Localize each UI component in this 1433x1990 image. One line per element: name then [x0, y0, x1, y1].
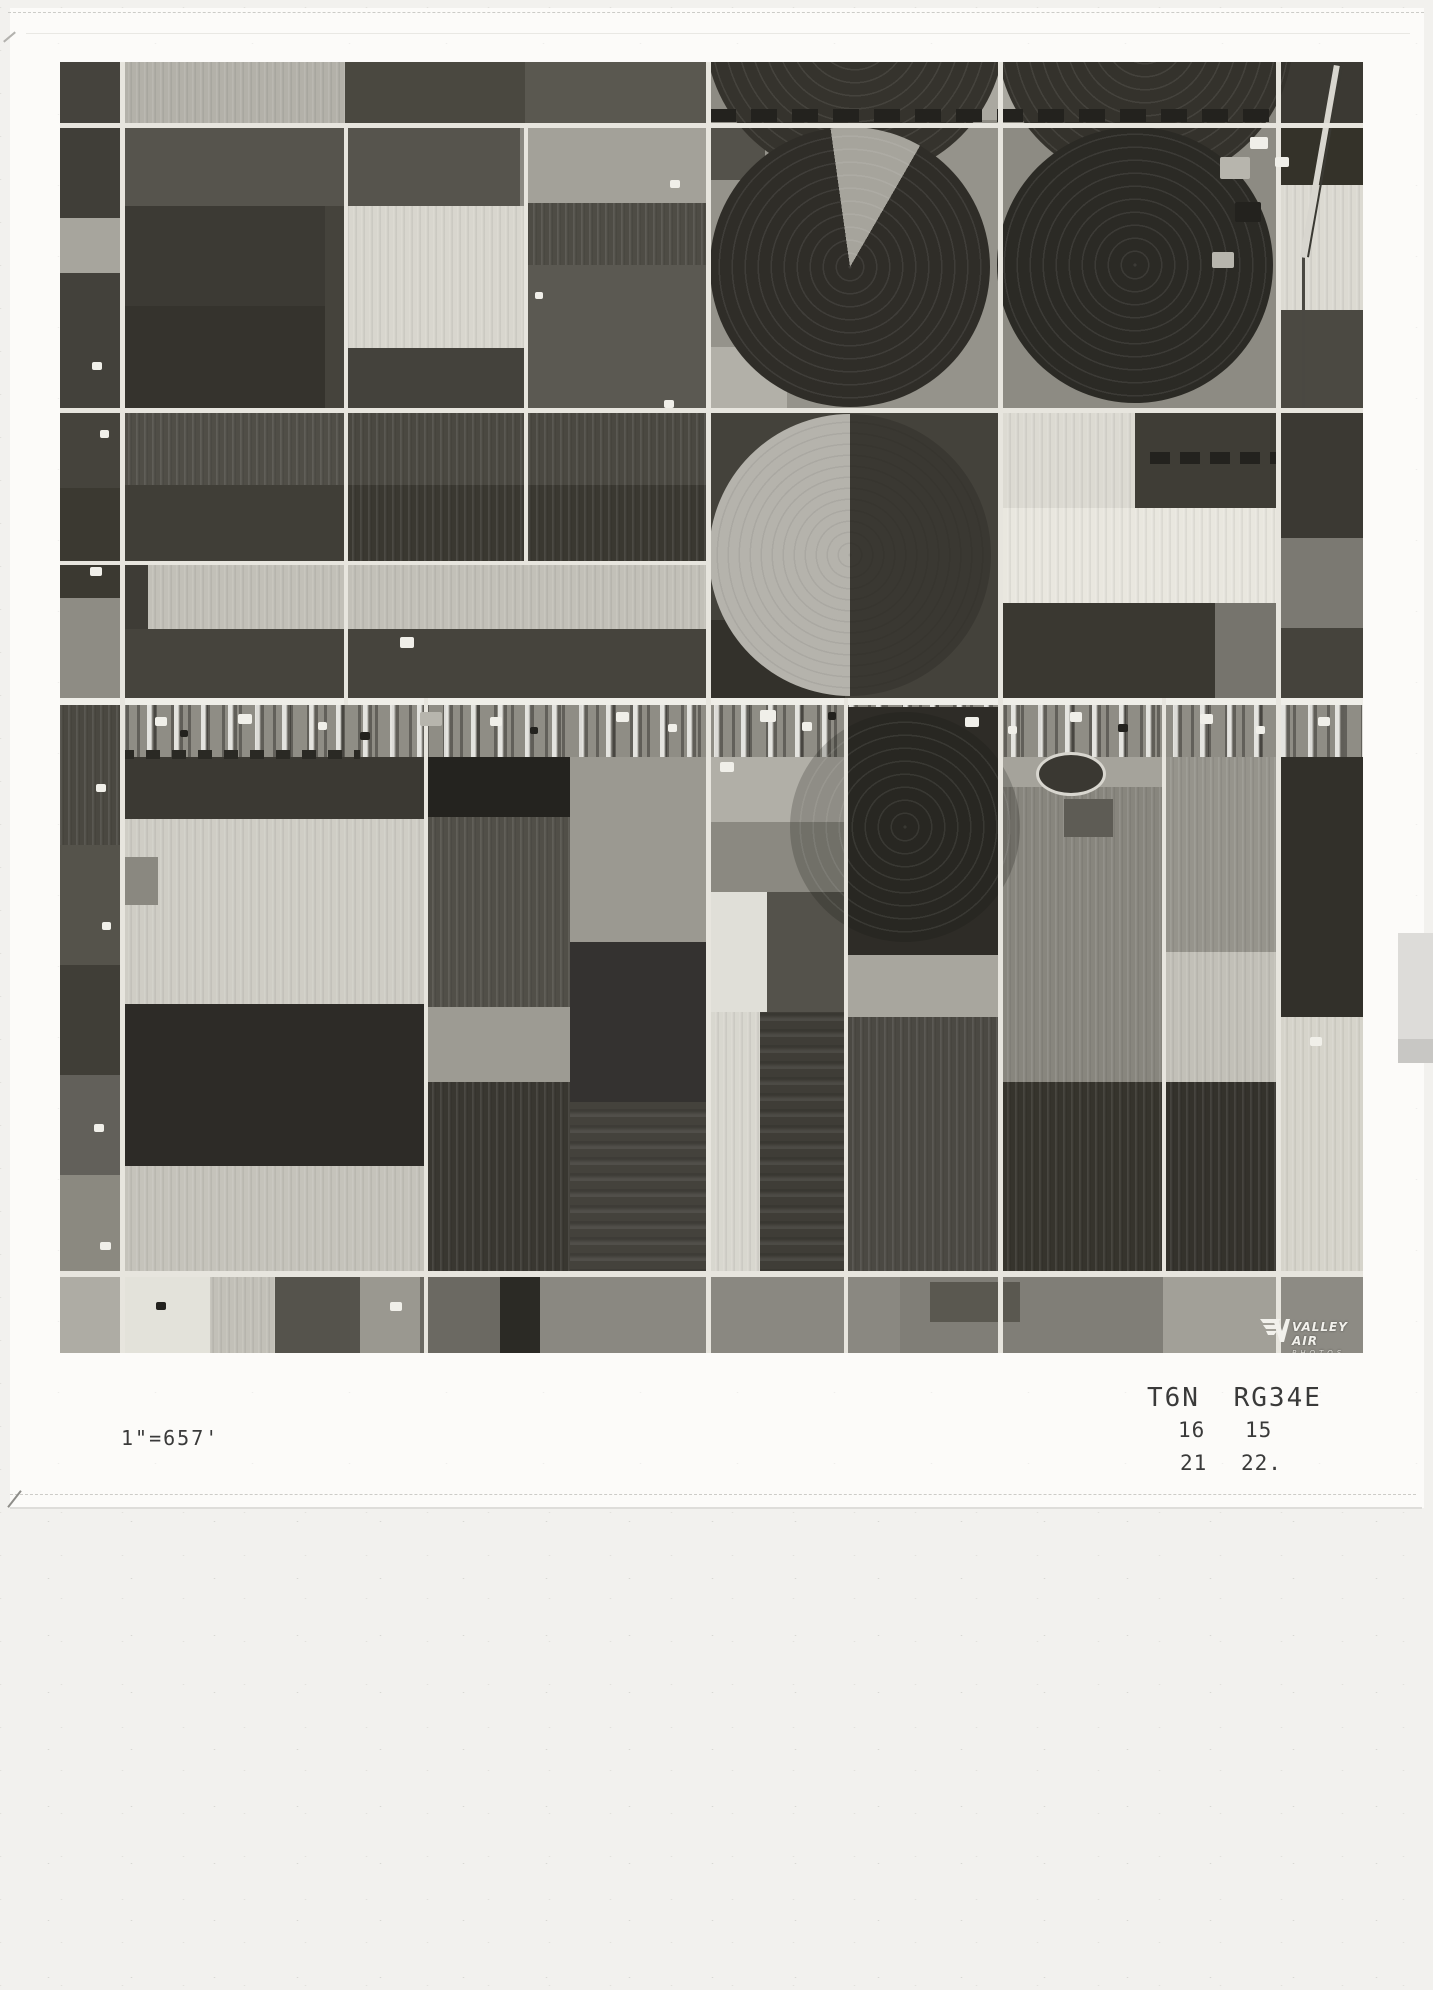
- farmstead-speck: [1310, 1037, 1322, 1046]
- field-region: [325, 206, 345, 408]
- farmstead-speck: [390, 1302, 402, 1311]
- field-region: [360, 1277, 420, 1353]
- farmstead-speck: [616, 712, 629, 722]
- field-region: [424, 1082, 570, 1277]
- tree-speck: [360, 732, 370, 740]
- farmstead-speck: [90, 567, 102, 576]
- tree-speck: [530, 727, 538, 734]
- field-region: [120, 565, 707, 629]
- farmstead-speck: [1250, 137, 1268, 149]
- road-line: [60, 698, 1363, 705]
- farmstead-speck: [760, 710, 776, 722]
- field-region: [60, 705, 120, 845]
- section-number-22: 22.: [1241, 1453, 1282, 1474]
- pivot-irrigation-circle: [710, 127, 990, 407]
- field-region: [500, 1277, 540, 1353]
- field-region: [999, 508, 1276, 603]
- farmstead-speck: [1008, 726, 1017, 734]
- tree-speck: [1235, 202, 1261, 222]
- aerial-photo: VALLEY AIR PHOTOS: [60, 62, 1363, 1353]
- road-line: [706, 62, 711, 1353]
- field-region: [120, 1166, 424, 1277]
- field-region: [999, 603, 1215, 698]
- field-region: [60, 62, 120, 123]
- field-region: [345, 348, 525, 408]
- farmstead-speck: [1200, 714, 1213, 724]
- road-line: [1162, 698, 1166, 1277]
- farmstead-speck: [420, 712, 442, 726]
- field-region: [844, 1017, 999, 1277]
- field-region: [999, 1082, 1162, 1277]
- road-line: [844, 698, 848, 1353]
- field-region: [1276, 757, 1363, 1017]
- road-line: [524, 123, 528, 563]
- field-region: [120, 413, 344, 485]
- field-region: [525, 203, 707, 265]
- road-line: [424, 698, 428, 1353]
- farmstead-speck: [1220, 157, 1250, 179]
- field-region: [1276, 1017, 1363, 1277]
- tree-row: [1150, 452, 1276, 464]
- field-region: [1215, 603, 1276, 698]
- pivot-irrigation-circle: [709, 414, 991, 696]
- farmstead-speck: [1212, 252, 1234, 268]
- farmstead-speck: [802, 722, 812, 731]
- pivot-irrigation-circle: [790, 712, 1020, 942]
- field-region: [1276, 408, 1363, 538]
- farmstead-speck: [238, 714, 252, 724]
- pivot-ring-texture: [709, 414, 991, 696]
- field-region: [60, 408, 120, 488]
- tree-speck: [828, 712, 836, 720]
- field-region: [345, 206, 525, 348]
- field-region: [120, 206, 325, 306]
- valley-air-photos-logo: VALLEY AIR PHOTOS: [1260, 1316, 1363, 1353]
- farmstead-speck: [1256, 726, 1265, 734]
- valley-air-wing-icon: [1260, 1316, 1290, 1347]
- field-region: [1064, 799, 1113, 837]
- field-region: [60, 965, 120, 1075]
- road-line: [344, 123, 348, 705]
- field-region: [120, 1277, 210, 1353]
- field-region: [60, 273, 120, 408]
- field-region: [120, 128, 520, 206]
- field-region: [120, 1004, 424, 1166]
- field-region: [844, 955, 999, 1017]
- stock-pond-oval: [1036, 752, 1106, 796]
- field-region: [570, 757, 707, 942]
- farmstead-speck: [1070, 712, 1082, 722]
- field-region: [1162, 757, 1276, 952]
- tree-row: [710, 109, 1276, 122]
- farmstead-speck: [670, 180, 680, 188]
- road-line: [60, 408, 1363, 413]
- farmstead-speck: [965, 717, 979, 727]
- tree-speck: [180, 730, 188, 737]
- farmstead-speck: [102, 922, 111, 930]
- index-card: VALLEY AIR PHOTOS 1"=657' T6N RG34E 16 1…: [10, 8, 1424, 1508]
- field-region: [525, 265, 707, 408]
- field-region: [1162, 952, 1276, 1082]
- farmstead-speck: [664, 400, 674, 408]
- field-region: [424, 817, 570, 1007]
- farmstead-speck: [155, 717, 167, 726]
- field-region: [1162, 1082, 1276, 1277]
- field-region: [210, 1277, 275, 1353]
- farmstead-speck: [100, 430, 109, 438]
- farmstead-speck: [94, 1124, 104, 1132]
- road-line: [120, 62, 125, 1353]
- field-region: [1276, 62, 1363, 123]
- field-region: [60, 1175, 120, 1277]
- section-number-15: 15: [1245, 1420, 1272, 1441]
- road-line: [60, 561, 710, 565]
- field-region: [120, 757, 424, 819]
- field-region: [60, 123, 120, 218]
- scan-background: { "annotations": { "scale_label": "1\"=6…: [0, 0, 1433, 1990]
- field-region: [1276, 628, 1363, 698]
- field-region: [60, 488, 120, 598]
- field-region: [420, 1277, 500, 1353]
- farmstead-speck: [490, 717, 502, 726]
- farmstead-speck: [318, 722, 327, 730]
- pivot-ring-texture: [790, 712, 1020, 942]
- pivot-ring-texture: [710, 127, 990, 407]
- road-line: [1276, 62, 1281, 1353]
- field-region: [1276, 310, 1363, 408]
- field-region: [525, 128, 707, 203]
- logo-line2: PHOTOS: [1292, 1349, 1363, 1353]
- field-region: [707, 892, 767, 1012]
- road-line: [60, 1271, 1363, 1277]
- field-region: [60, 1075, 120, 1175]
- farmstead-speck: [400, 637, 414, 648]
- field-region: [60, 218, 120, 273]
- field-region: [424, 757, 570, 817]
- field-region: [424, 1007, 570, 1082]
- road-line: [998, 62, 1003, 1353]
- road-line: [60, 123, 1363, 128]
- field-region: [120, 306, 325, 408]
- field-region: [345, 62, 525, 123]
- section-number-21: 21: [1180, 1453, 1207, 1474]
- field-region: [60, 845, 120, 965]
- field-region: [1276, 538, 1363, 628]
- section-number-16: 16: [1178, 1420, 1205, 1441]
- field-region: [760, 1012, 844, 1277]
- field-region: [120, 819, 424, 1004]
- farmstead-speck: [535, 292, 543, 299]
- tree-row: [120, 750, 360, 759]
- field-region: [120, 857, 158, 905]
- tree-speck: [1118, 724, 1128, 732]
- field-region: [60, 1277, 120, 1353]
- farmstead-speck: [92, 362, 102, 370]
- farmstead-speck: [720, 762, 734, 772]
- farmstead-speck: [96, 784, 106, 792]
- logo-line1: VALLEY AIR: [1292, 1320, 1363, 1348]
- farmstead-speck: [1275, 157, 1289, 167]
- field-region: [120, 485, 344, 563]
- field-region: [275, 1277, 360, 1353]
- farmstead-speck: [668, 724, 677, 732]
- field-region: [60, 598, 120, 705]
- field-region: [570, 942, 707, 1102]
- field-region: [999, 408, 1135, 508]
- scale-label: 1"=657': [121, 1428, 219, 1448]
- field-region: [930, 1282, 1020, 1322]
- farmstead-speck: [1318, 717, 1330, 726]
- field-region: [120, 62, 345, 123]
- field-region: [525, 62, 707, 123]
- field-region: [1276, 185, 1363, 310]
- township-range-label: T6N RG34E: [1147, 1385, 1322, 1411]
- field-region: [1302, 252, 1305, 410]
- field-region: [570, 1102, 707, 1277]
- field-region: [707, 1012, 760, 1277]
- tree-speck: [156, 1302, 166, 1310]
- farmstead-speck: [100, 1242, 111, 1250]
